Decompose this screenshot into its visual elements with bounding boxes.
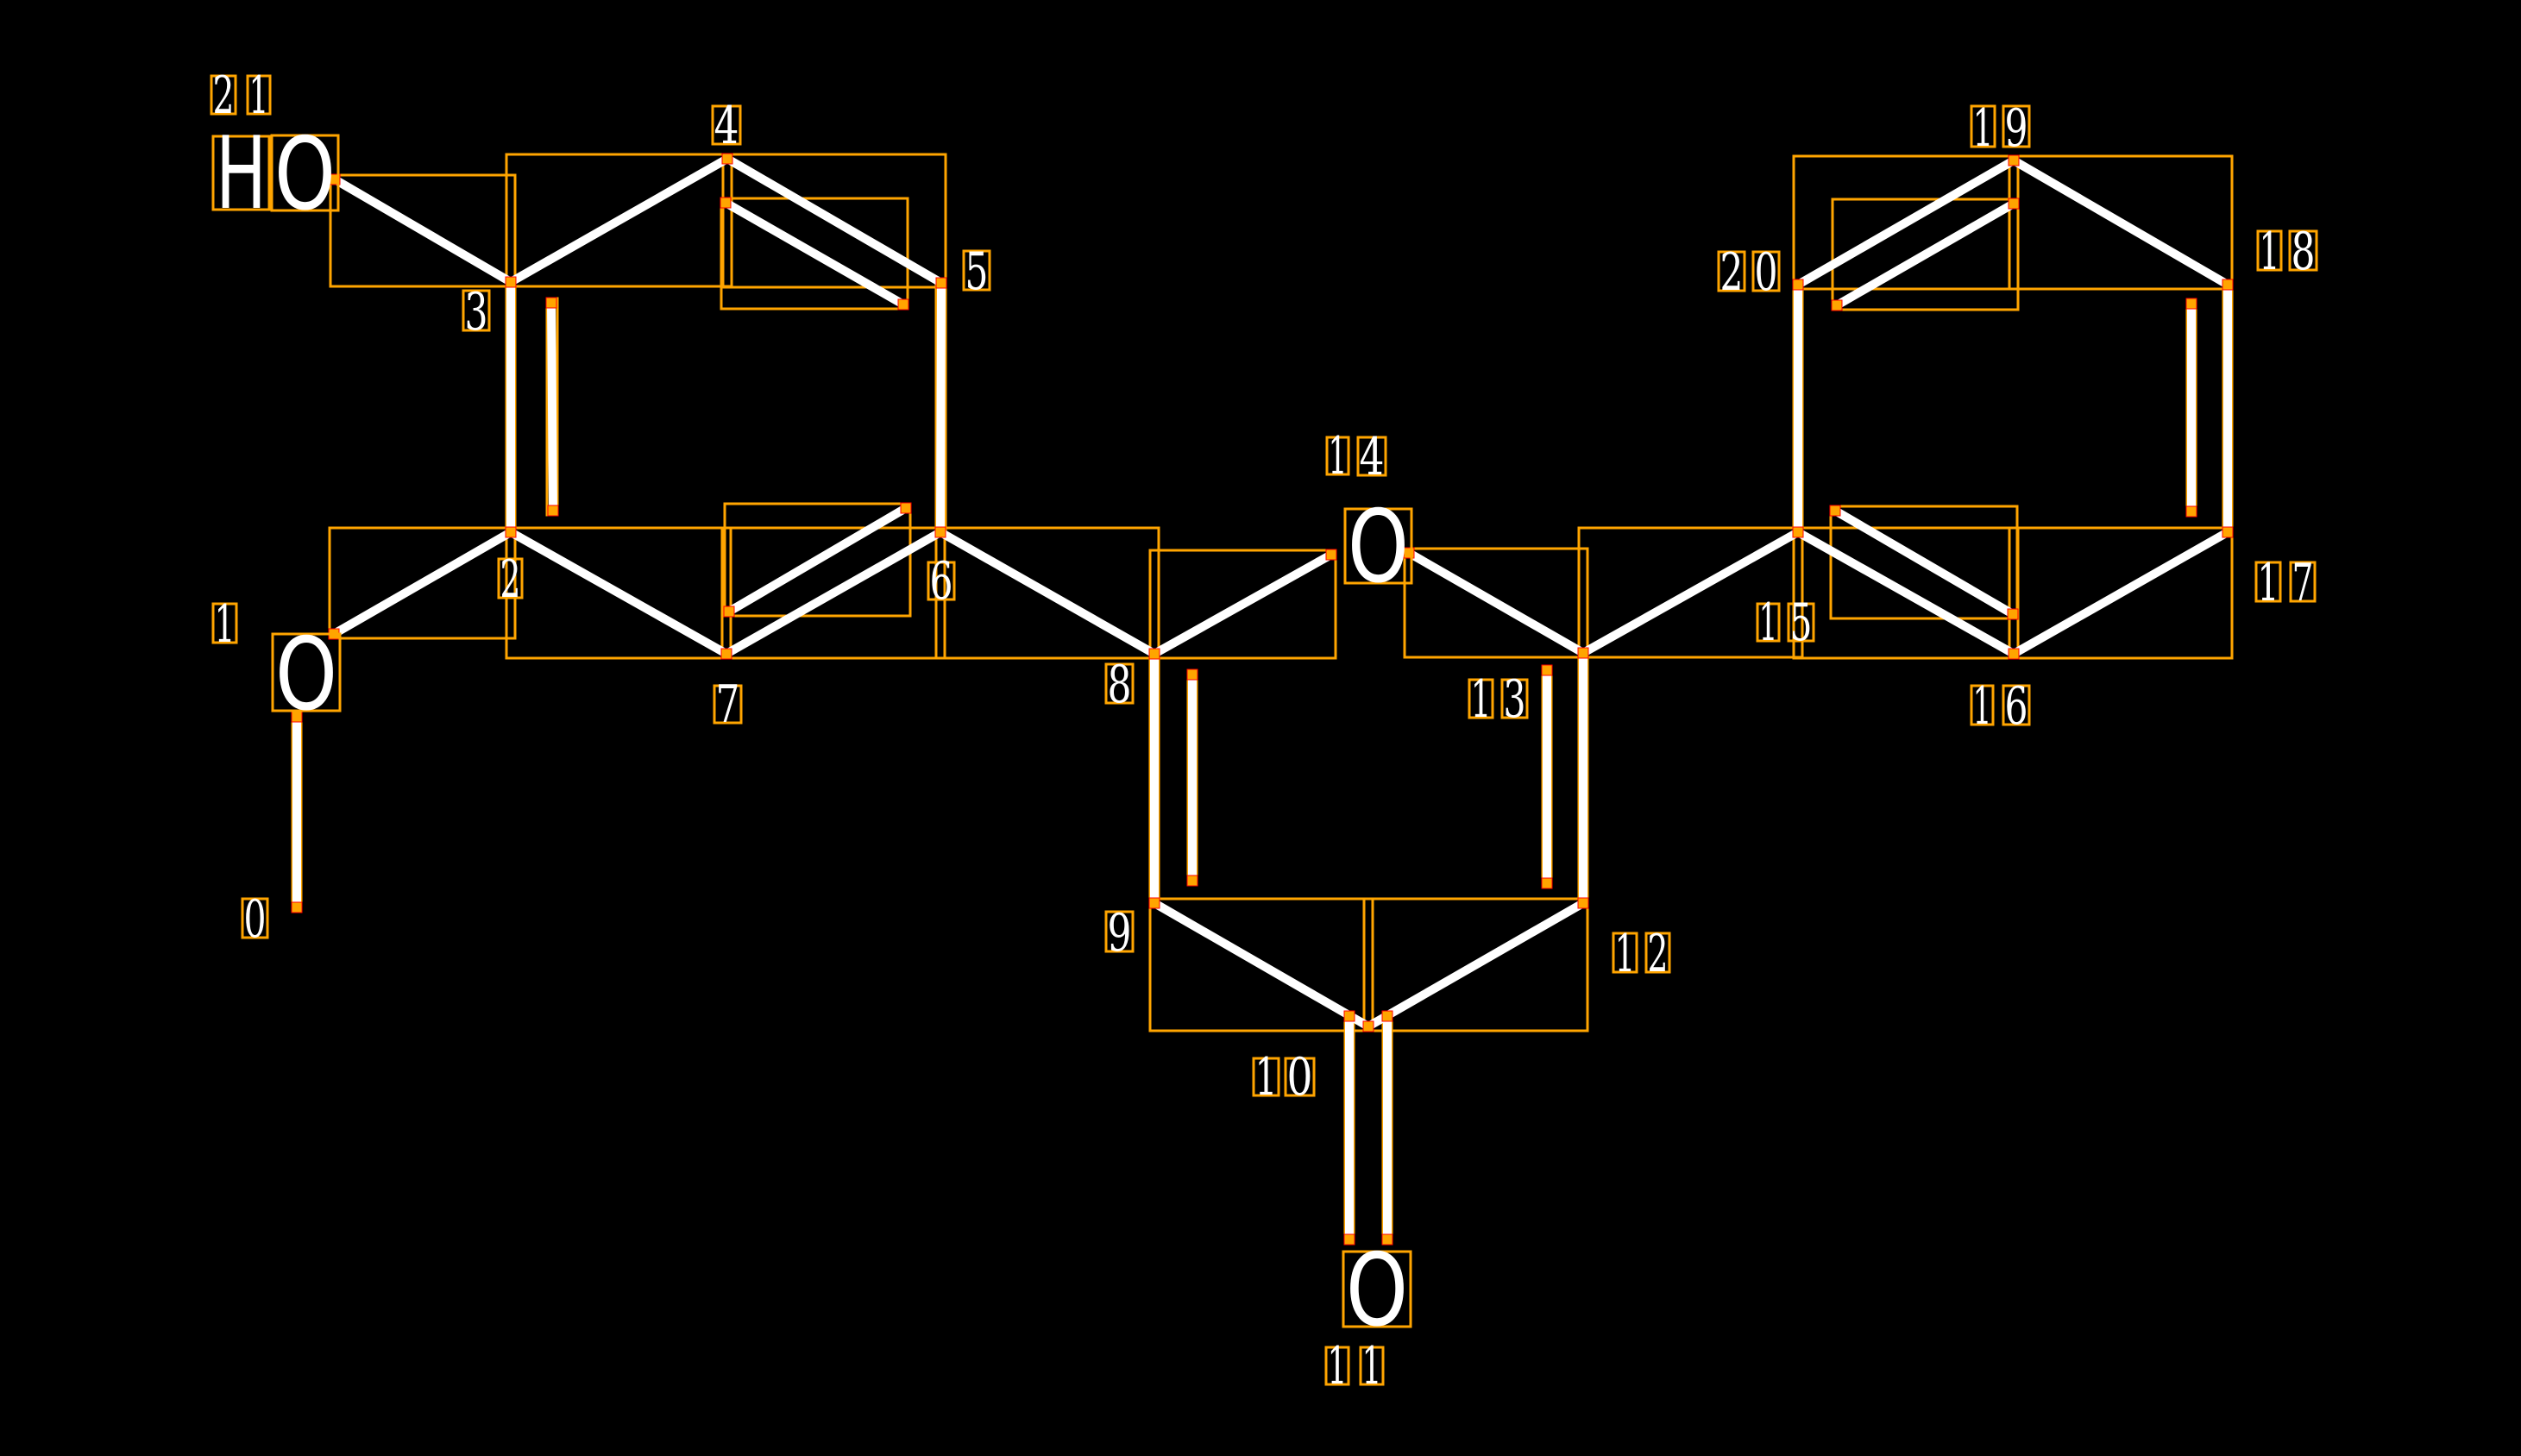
- bond-5-6-endpoint-square: [937, 279, 946, 288]
- background: [0, 0, 2521, 1456]
- bond-18-19-endpoint-square: [2223, 280, 2233, 290]
- atom-label-0: 0: [244, 889, 267, 950]
- bond-9-10-endpoint-square: [1150, 899, 1160, 908]
- bond-17-18-inner-endpoint-square: [2187, 507, 2197, 517]
- molecule-annotation-canvas: HOOOO0123456789101112131415161718192021: [0, 0, 2521, 1456]
- bond-8-14-endpoint-square: [1150, 650, 1160, 659]
- bond-8-9-inner-endpoint-square: [1188, 670, 1198, 680]
- atom-label-11: 1: [1328, 1336, 1348, 1396]
- bond-8-9-inner-endpoint-square: [1188, 876, 1198, 886]
- atom-label-8: 8: [1108, 655, 1132, 715]
- atom-label-18: 1: [2260, 222, 2280, 282]
- hydroxyl-O-glyph: O: [274, 116, 336, 233]
- atom-label-7: 7: [716, 675, 740, 735]
- bond-12-13-inner-endpoint-square: [1543, 879, 1552, 888]
- molecule-structure-svg: HOOOO0123456789101112131415161718192021: [0, 0, 2521, 1456]
- bond-6-7-inner-endpoint-square: [902, 504, 911, 513]
- bond-1-0-endpoint-square: [292, 903, 302, 913]
- bond-12-13-inner-endpoint-square: [1543, 666, 1552, 675]
- bond-13-15-endpoint-square: [1579, 649, 1588, 658]
- atom-label-13: 3: [1504, 669, 1526, 730]
- atom-label-21: 1: [249, 66, 269, 126]
- bond-17-18-inner-endpoint-square: [2187, 299, 2197, 309]
- bond-4-5-inner-endpoint-square: [899, 300, 908, 310]
- atom-label-16: 1: [1973, 676, 1992, 737]
- atom-label-18: 8: [2292, 222, 2316, 282]
- atom-label-14: 1: [1329, 426, 1348, 486]
- ring-O-glyph: O: [1348, 489, 1409, 606]
- atom-label-1: 1: [215, 594, 236, 655]
- atom-label-20: 2: [1720, 242, 1744, 303]
- bond-12-13-endpoint-square: [1579, 899, 1588, 908]
- atom-label-10: 1: [1255, 1047, 1278, 1108]
- bond-3-4-endpoint-square: [506, 278, 516, 287]
- bond-10-11-right-endpoint-square: [1383, 1012, 1393, 1021]
- atom-label-15: 1: [1759, 593, 1778, 653]
- bond-15-16-inner-endpoint-square: [1831, 506, 1840, 516]
- atom-label-13: 1: [1471, 669, 1492, 730]
- bond-19-20-inner-endpoint-square: [2009, 199, 2019, 209]
- bond-8-14-endpoint-square: [1327, 550, 1336, 560]
- methoxy-O-glyph: O: [275, 617, 337, 733]
- atom-label-17: 7: [2292, 553, 2314, 613]
- bond-2-1-endpoint-square: [506, 528, 516, 537]
- atom-label-15: 5: [1790, 593, 1813, 653]
- atom-label-10: 0: [1287, 1047, 1313, 1108]
- bond-20-15-endpoint-square: [1794, 528, 1803, 537]
- bond-19-20-inner-endpoint-square: [1833, 301, 1842, 311]
- atom-label-11: 1: [1362, 1336, 1382, 1396]
- carbonyl-O-glyph: O: [1346, 1233, 1408, 1349]
- bond-16-17-endpoint-square: [2009, 650, 2019, 659]
- bond-5-6: [940, 283, 941, 532]
- atom-label-6: 6: [930, 551, 953, 612]
- atom-label-19: 1: [1973, 98, 1994, 159]
- bond-3-2-inner-endpoint-square: [549, 506, 558, 516]
- bond-17-18-endpoint-square: [2223, 528, 2233, 537]
- bond-4-5-inner-endpoint-square: [721, 198, 731, 208]
- atom-label-4: 4: [714, 96, 739, 156]
- bond-3-2-inner: [551, 303, 553, 511]
- bond-6-7-inner-endpoint-square: [725, 607, 734, 617]
- atom-label-17: 1: [2258, 553, 2279, 613]
- atom-label-16: 6: [2005, 676, 2028, 737]
- atom-label-21: 2: [213, 66, 235, 126]
- atom-label-2: 2: [500, 549, 521, 610]
- atom-label-9: 9: [1108, 903, 1132, 963]
- atom-label-12: 1: [1615, 924, 1636, 984]
- bond-10-12-endpoint-square: [1364, 1022, 1374, 1032]
- atom-label-14: 4: [1360, 427, 1385, 487]
- atom-label-19: 9: [2005, 98, 2028, 159]
- bond-3-2-inner-endpoint-square: [547, 298, 556, 308]
- bond-20-15-endpoint-square: [1794, 280, 1803, 290]
- atom-label-12: 2: [1648, 924, 1669, 984]
- bond-15-16-inner-endpoint-square: [2009, 610, 2018, 619]
- bond-10-11-left-endpoint-square: [1345, 1012, 1355, 1021]
- atom-label-5: 5: [965, 242, 989, 302]
- atom-label-20: 0: [1755, 242, 1778, 303]
- atom-label-3: 3: [465, 282, 488, 342]
- hydroxyl-H-glyph: H: [216, 116, 267, 232]
- bond-7-2-endpoint-square: [722, 650, 732, 659]
- bond-6-8-endpoint-square: [936, 528, 946, 537]
